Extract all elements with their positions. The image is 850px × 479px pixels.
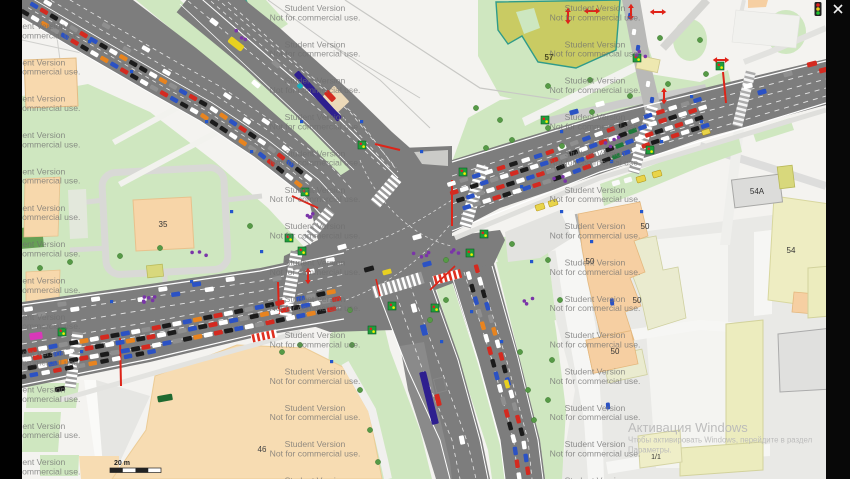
svg-text:Параметры.: Параметры. xyxy=(628,446,672,455)
svg-text:1/1: 1/1 xyxy=(651,454,661,461)
svg-text:Not for commercial use.: Not for commercial use. xyxy=(270,230,361,240)
svg-text:Not for commercial use.: Not for commercial use. xyxy=(270,121,361,131)
svg-text:Not for commercial use.: Not for commercial use. xyxy=(550,267,641,277)
svg-text:Not for commercial use.: Not for commercial use. xyxy=(270,158,361,168)
svg-text:Not for commercial use.: Not for commercial use. xyxy=(270,85,361,95)
svg-text:Student Version: Student Version xyxy=(565,476,626,479)
svg-text:Not for commercial use.: Not for commercial use. xyxy=(550,449,641,459)
svg-text:Not for commercial use.: Not for commercial use. xyxy=(270,412,361,422)
svg-text:Not for commercial use.: Not for commercial use. xyxy=(550,412,641,422)
svg-text:Not for commercial use.: Not for commercial use. xyxy=(550,158,641,168)
svg-text:Not for commercial use.: Not for commercial use. xyxy=(270,376,361,386)
svg-text:Not for commercial use.: Not for commercial use. xyxy=(550,12,641,22)
svg-text:Not for commercial use.: Not for commercial use. xyxy=(550,49,641,59)
svg-text:Not for commercial use.: Not for commercial use. xyxy=(270,267,361,277)
svg-text:Not for commercial use.: Not for commercial use. xyxy=(550,230,641,240)
svg-text:Not for commercial use.: Not for commercial use. xyxy=(550,303,641,313)
svg-text:20 m: 20 m xyxy=(114,460,130,467)
svg-text:Not for commercial use.: Not for commercial use. xyxy=(270,449,361,459)
svg-text:Not for commercial use.: Not for commercial use. xyxy=(270,340,361,350)
svg-text:Чтобы активировать Windows, пе: Чтобы активировать Windows, перейдите в … xyxy=(628,436,813,445)
svg-text:Not for commercial use.: Not for commercial use. xyxy=(550,194,641,204)
svg-text:Not for commercial use.: Not for commercial use. xyxy=(550,376,641,386)
svg-text:Активация Windows: Активация Windows xyxy=(628,420,748,435)
svg-text:46: 46 xyxy=(258,445,267,454)
svg-text:Not for commercial use.: Not for commercial use. xyxy=(550,340,641,350)
svg-text:Not for commercial use.: Not for commercial use. xyxy=(550,85,641,95)
svg-text:Not for commercial use.: Not for commercial use. xyxy=(270,12,361,22)
svg-text:Not for commercial use.: Not for commercial use. xyxy=(270,194,361,204)
svg-text:Student Version: Student Version xyxy=(285,476,346,479)
svg-text:Not for commercial use.: Not for commercial use. xyxy=(270,303,361,313)
svg-text:50: 50 xyxy=(641,222,650,231)
svg-text:35: 35 xyxy=(159,220,168,229)
svg-text:Not for commercial use.: Not for commercial use. xyxy=(550,121,641,131)
svg-text:54: 54 xyxy=(787,246,796,255)
svg-text:54A: 54A xyxy=(750,187,765,196)
svg-text:Not for commercial use.: Not for commercial use. xyxy=(270,49,361,59)
